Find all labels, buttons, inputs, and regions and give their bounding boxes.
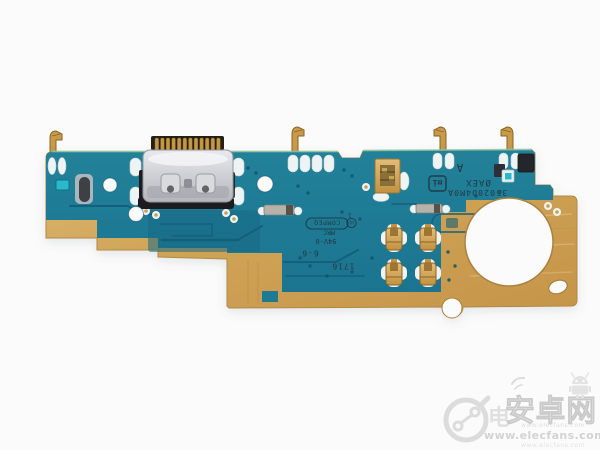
microphone-hole (75, 174, 93, 204)
photo-canvas: A ØAEX mi 35020D4M0A COMPEQ UL 1 MRC (0, 0, 600, 450)
silkscreen-manufacturer: COMPEQ (314, 219, 340, 227)
pad (288, 155, 298, 172)
test-point (544, 202, 552, 210)
watermark-small-url-top: www.elecfans.com (521, 422, 585, 429)
silkscreen-corner-letter: A (456, 161, 463, 174)
svg-text:mi: mi (433, 178, 443, 188)
silkscreen-part-number: 35020D4M0A (447, 188, 507, 197)
mask-window (262, 291, 278, 302)
pad (48, 158, 56, 175)
pcb-board: A ØAEX mi 35020D4M0A COMPEQ UL 1 MRC (46, 127, 577, 318)
silkscreen-date-code: 1716 (331, 261, 354, 270)
elecfans-logo-icon (446, 398, 488, 440)
test-point (230, 215, 238, 223)
silkscreen-mrc: MRC (323, 229, 335, 237)
pad (433, 153, 442, 169)
pad (445, 153, 454, 169)
pad (294, 207, 302, 215)
pad (312, 155, 322, 172)
flex-tab-icon (292, 127, 304, 154)
pad (373, 193, 389, 202)
silkscreen-pin1: 1 (348, 212, 352, 219)
pad (442, 205, 450, 213)
silkscreen-ul-mark: UL (349, 220, 354, 225)
test-point (362, 183, 370, 191)
edge-notch (442, 298, 462, 318)
usb-c-connector (138, 136, 235, 209)
chip-resistor (416, 204, 442, 213)
chip-resistor (264, 205, 294, 215)
screw-hole (129, 207, 144, 222)
watermark-url: www.elecfans.com (484, 429, 600, 442)
test-point (553, 208, 561, 216)
signal-arcs-icon (512, 378, 524, 389)
pad (58, 158, 66, 175)
pcb-photo-illustration: A ØAEX mi 35020D4M0A COMPEQ UL 1 MRC (0, 0, 600, 450)
silkscreen-flammability: 94V-0 (315, 237, 336, 245)
silkscreen-vendor-code: ØAEX (465, 177, 491, 188)
vibration-motor-hole (465, 198, 553, 286)
test-point (152, 211, 160, 219)
pad (300, 155, 310, 172)
silkscreen-panel-code: 6-6 (301, 248, 318, 257)
watermark: 电 安卓网 www.elecfans.com www.elecfans.com … (446, 373, 600, 449)
screw-hole (103, 178, 117, 192)
test-point (222, 209, 230, 217)
watermark-small-url-bottom: www.elecfans.com (521, 442, 585, 449)
screw-hole (257, 176, 273, 192)
mems-microphone-component (375, 159, 400, 193)
ground-plane-patch (148, 210, 260, 252)
pad (324, 155, 334, 172)
cyan-capacitor (56, 180, 69, 190)
